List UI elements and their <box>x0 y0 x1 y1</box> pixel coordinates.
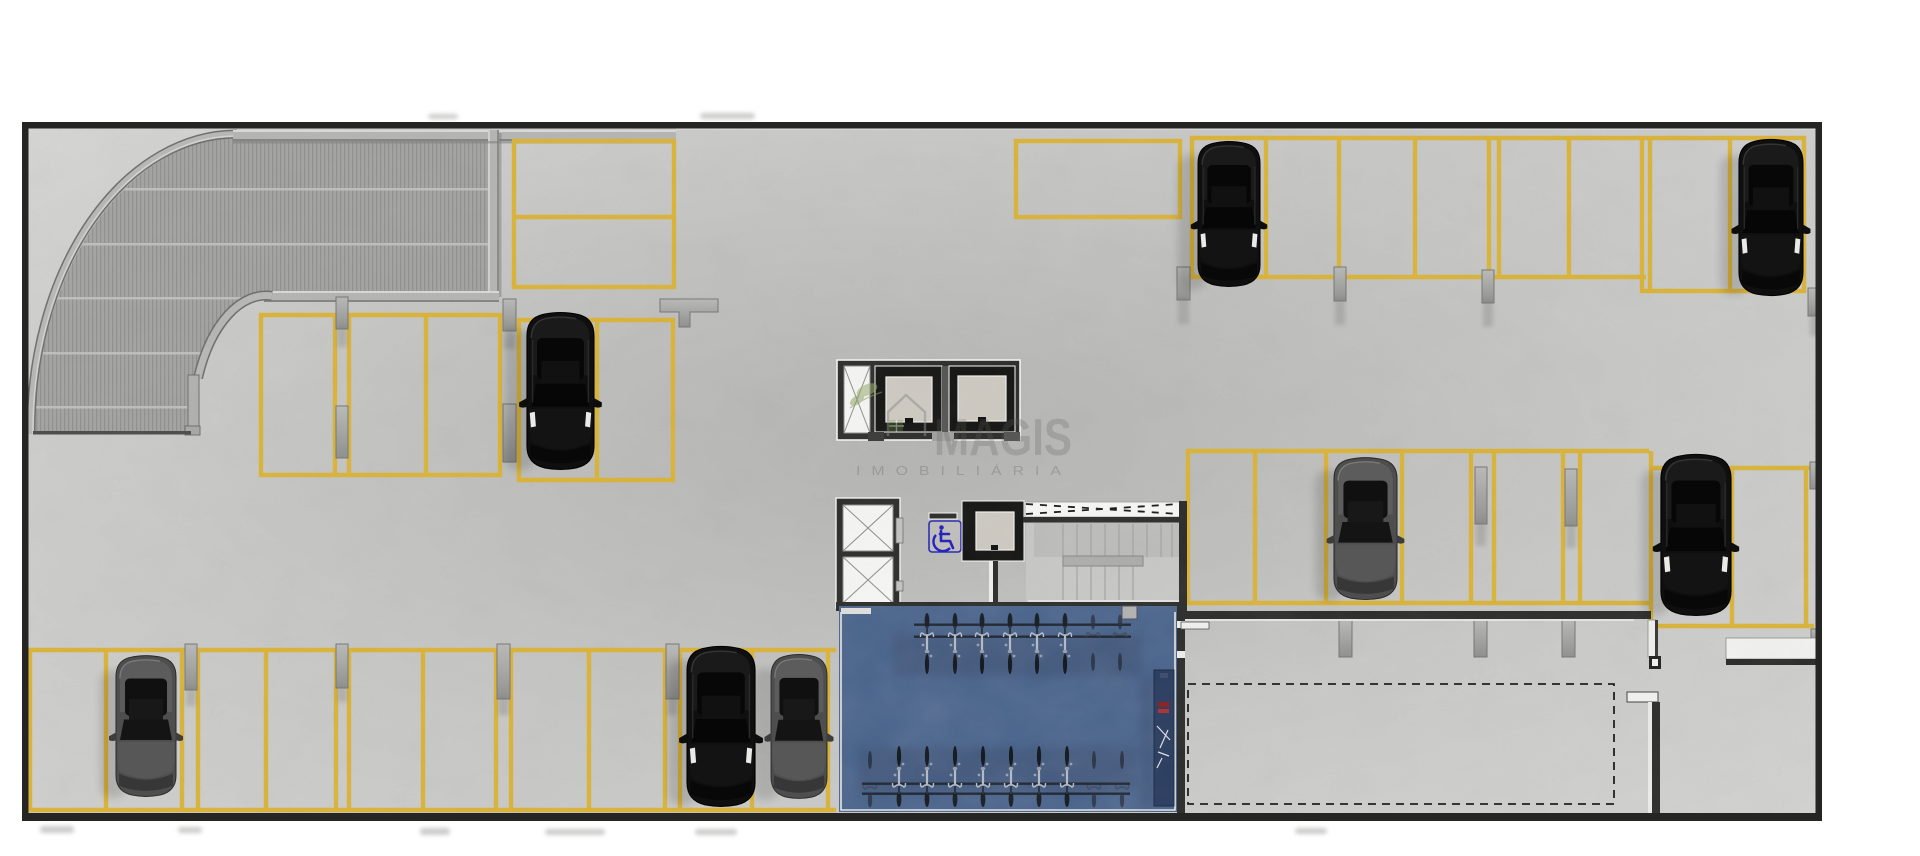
svg-text:IMOBILIÁRIA: IMOBILIÁRIA <box>856 463 1072 478</box>
svg-text:MAGIS: MAGIS <box>934 409 1072 467</box>
